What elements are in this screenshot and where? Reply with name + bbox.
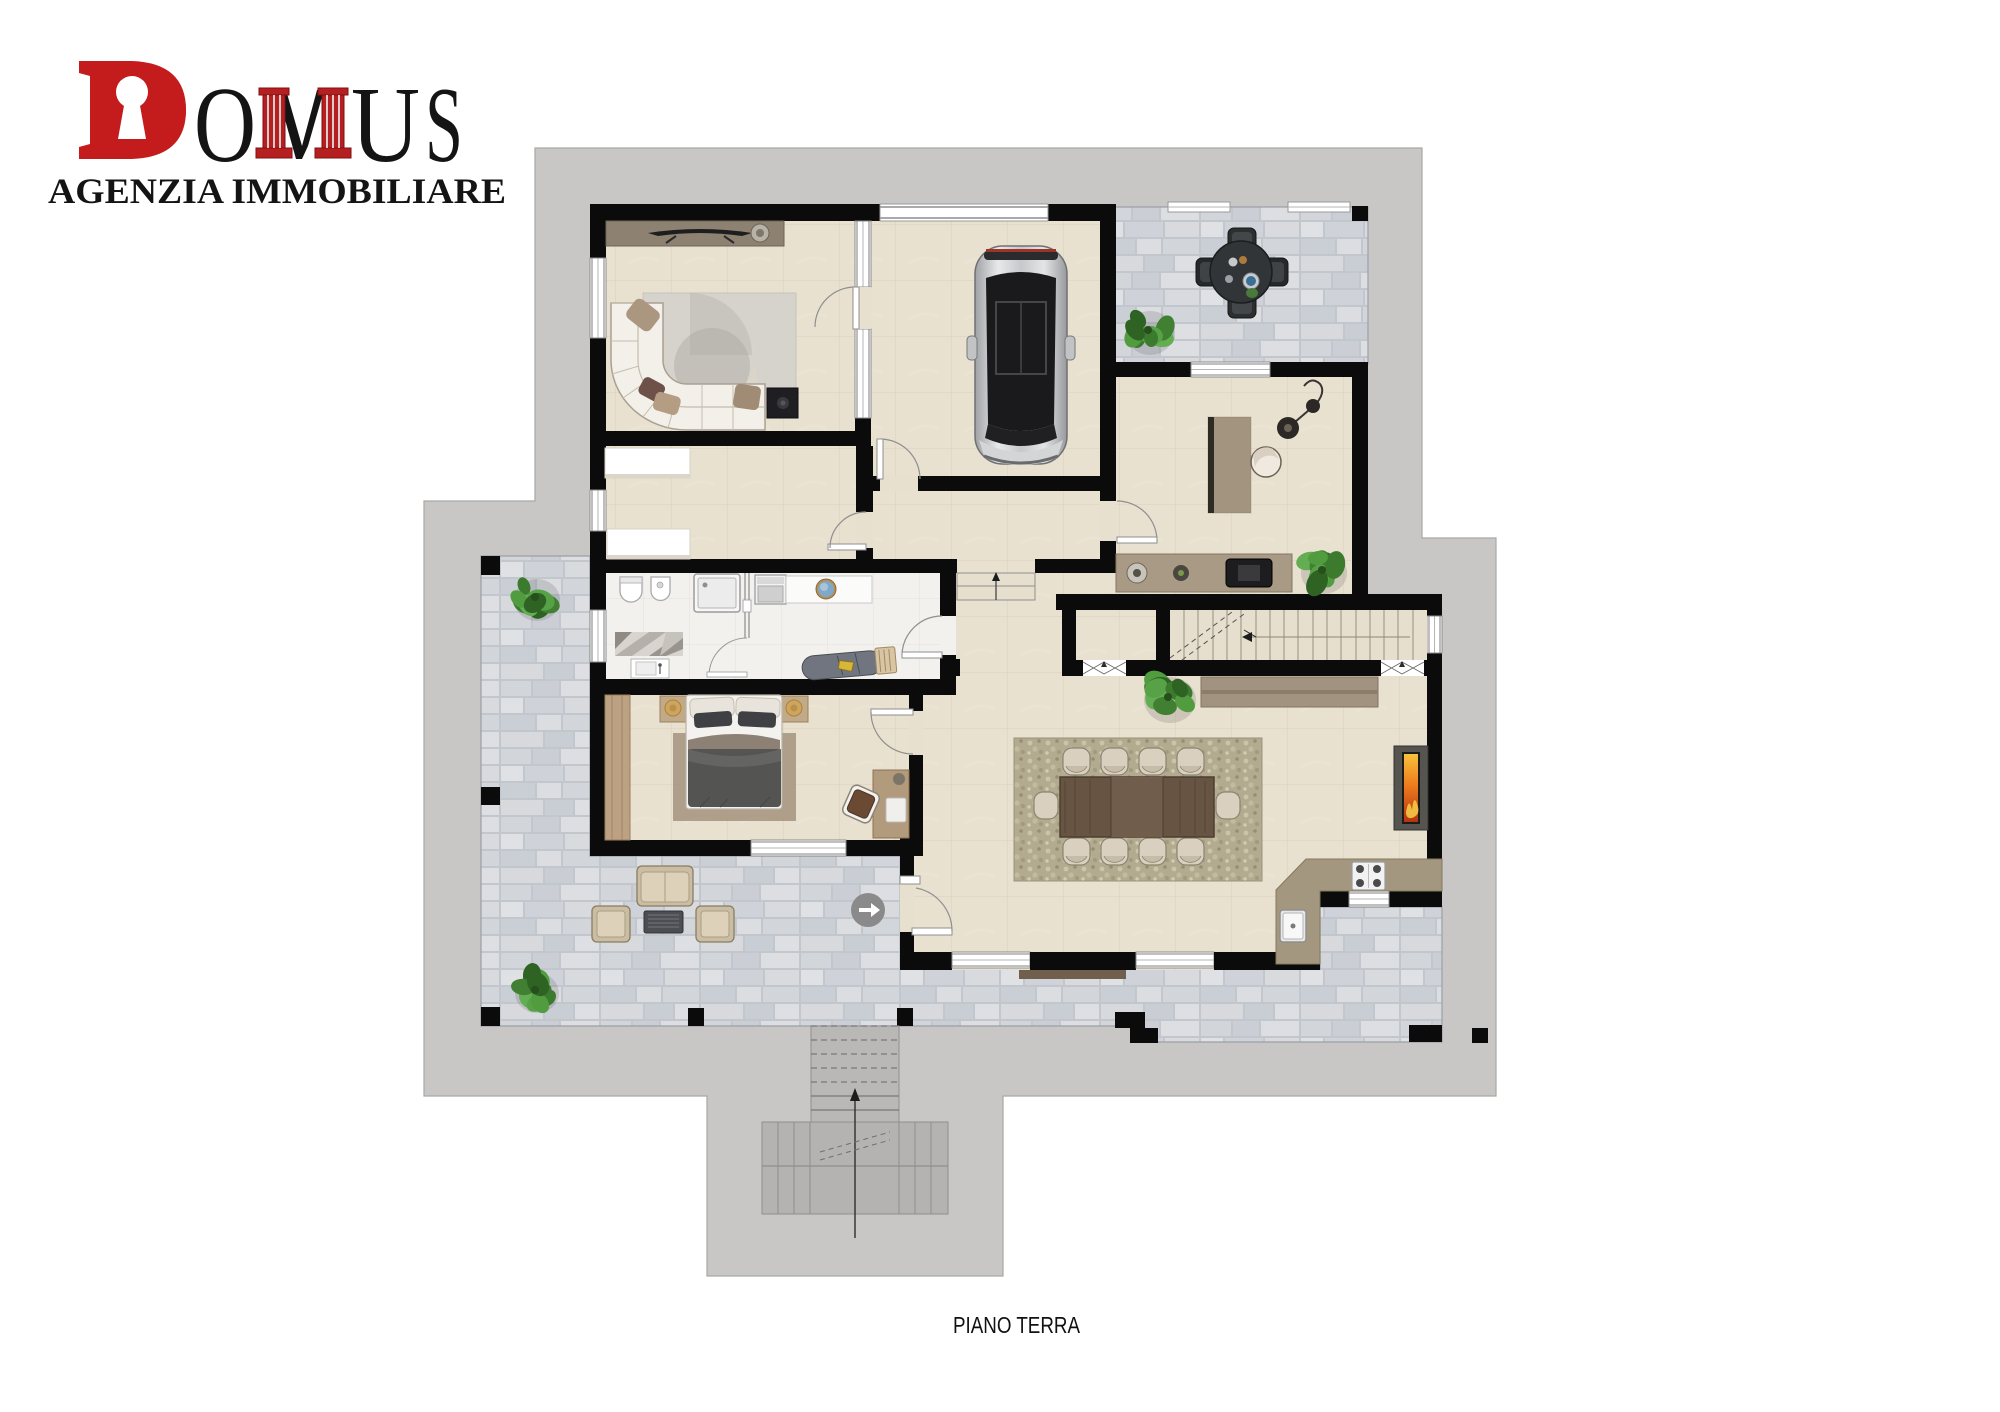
svg-text:AGENZIA IMMOBILIARE: AGENZIA IMMOBILIARE: [48, 171, 506, 211]
svg-text:PIANO TERRA: PIANO TERRA: [953, 1312, 1081, 1338]
svg-text:U: U: [351, 66, 420, 185]
svg-text:O: O: [194, 66, 256, 185]
svg-text:S: S: [425, 66, 463, 185]
